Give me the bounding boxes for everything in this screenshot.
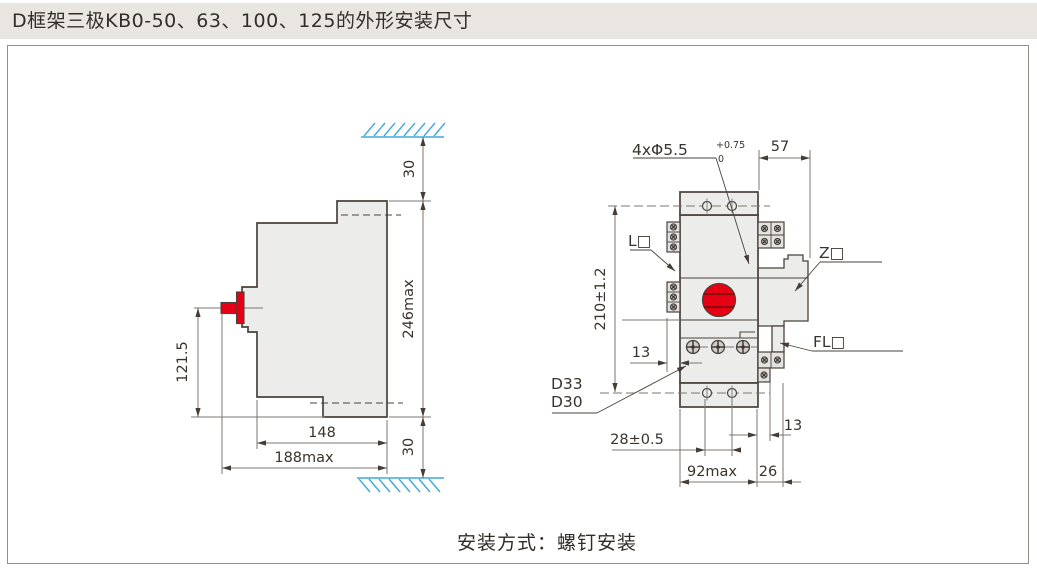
model-d33-text: D33 xyxy=(551,375,583,393)
accessory-fl-module xyxy=(772,326,784,352)
accessory-left-text: L□ xyxy=(628,232,651,250)
model-d30-text: D30 xyxy=(551,393,583,411)
mounting-caption: 安装方式：螺钉安装 xyxy=(8,528,1028,555)
terminal-block-left-bottom xyxy=(667,282,680,312)
dim-label: 30 xyxy=(401,438,417,456)
page: D框架三极KB0-50、63、100、125的外形安装尺寸 xyxy=(0,0,1037,575)
mounting-holes-text: 4xΦ5.5 xyxy=(632,141,688,159)
tolerance-superscript: +0.75 xyxy=(716,140,745,151)
accessory-fl-text: FL□ xyxy=(813,333,845,351)
dim-width-max: 92max xyxy=(680,409,757,487)
dim-bottom-clearance: 30 xyxy=(401,417,426,478)
dim-label: 28±0.5 xyxy=(610,432,664,448)
dim-label: 246max xyxy=(401,279,417,339)
wall-hatch-top xyxy=(361,123,445,137)
dim-height-max: 246max xyxy=(389,201,431,417)
dim-label: 210±1.2 xyxy=(593,268,609,331)
dim-label: 121.5 xyxy=(175,341,191,383)
dim-hole-pitch-vertical: 210±1.2 xyxy=(593,206,618,392)
dim-label: 26 xyxy=(759,464,777,480)
tolerance-subscript: 0 xyxy=(718,154,724,165)
dim-top-clearance: 30 xyxy=(389,137,431,201)
dim-label: 92max xyxy=(687,464,737,480)
dim-label: 13 xyxy=(632,345,650,361)
dim-label: 148 xyxy=(308,425,336,441)
pole-terminal-screws xyxy=(686,341,757,354)
trip-button xyxy=(703,284,736,317)
terminal-block-left-top xyxy=(667,222,680,252)
page-title: D框架三极KB0-50、63、100、125的外形安装尺寸 xyxy=(12,3,472,39)
dim-label: 13 xyxy=(784,418,802,434)
accessory-right-text: Z□ xyxy=(819,244,844,262)
label-accessory-fl: FL□ xyxy=(779,333,903,351)
terminal-block-right-bottom xyxy=(758,352,784,382)
front-view-drawing: 4xΦ5.5 +0.75 0 L□ Z□ xyxy=(551,139,903,487)
side-view-drawing: 30 246max 30 xyxy=(175,123,445,492)
accessory-z-module xyxy=(758,255,808,352)
wall-hatch-bottom xyxy=(357,478,444,492)
drawing-frame: 30 246max 30 xyxy=(7,45,1029,564)
breaker-side-body xyxy=(242,201,403,417)
title-bar: D框架三极KB0-50、63、100、125的外形安装尺寸 xyxy=(0,3,1037,39)
dim-label: 57 xyxy=(771,139,789,155)
dim-label: 188max xyxy=(274,450,334,466)
dim-label: 30 xyxy=(402,160,418,178)
technical-drawing: 30 246max 30 xyxy=(8,46,1028,563)
terminal-block-right-top xyxy=(758,222,784,248)
